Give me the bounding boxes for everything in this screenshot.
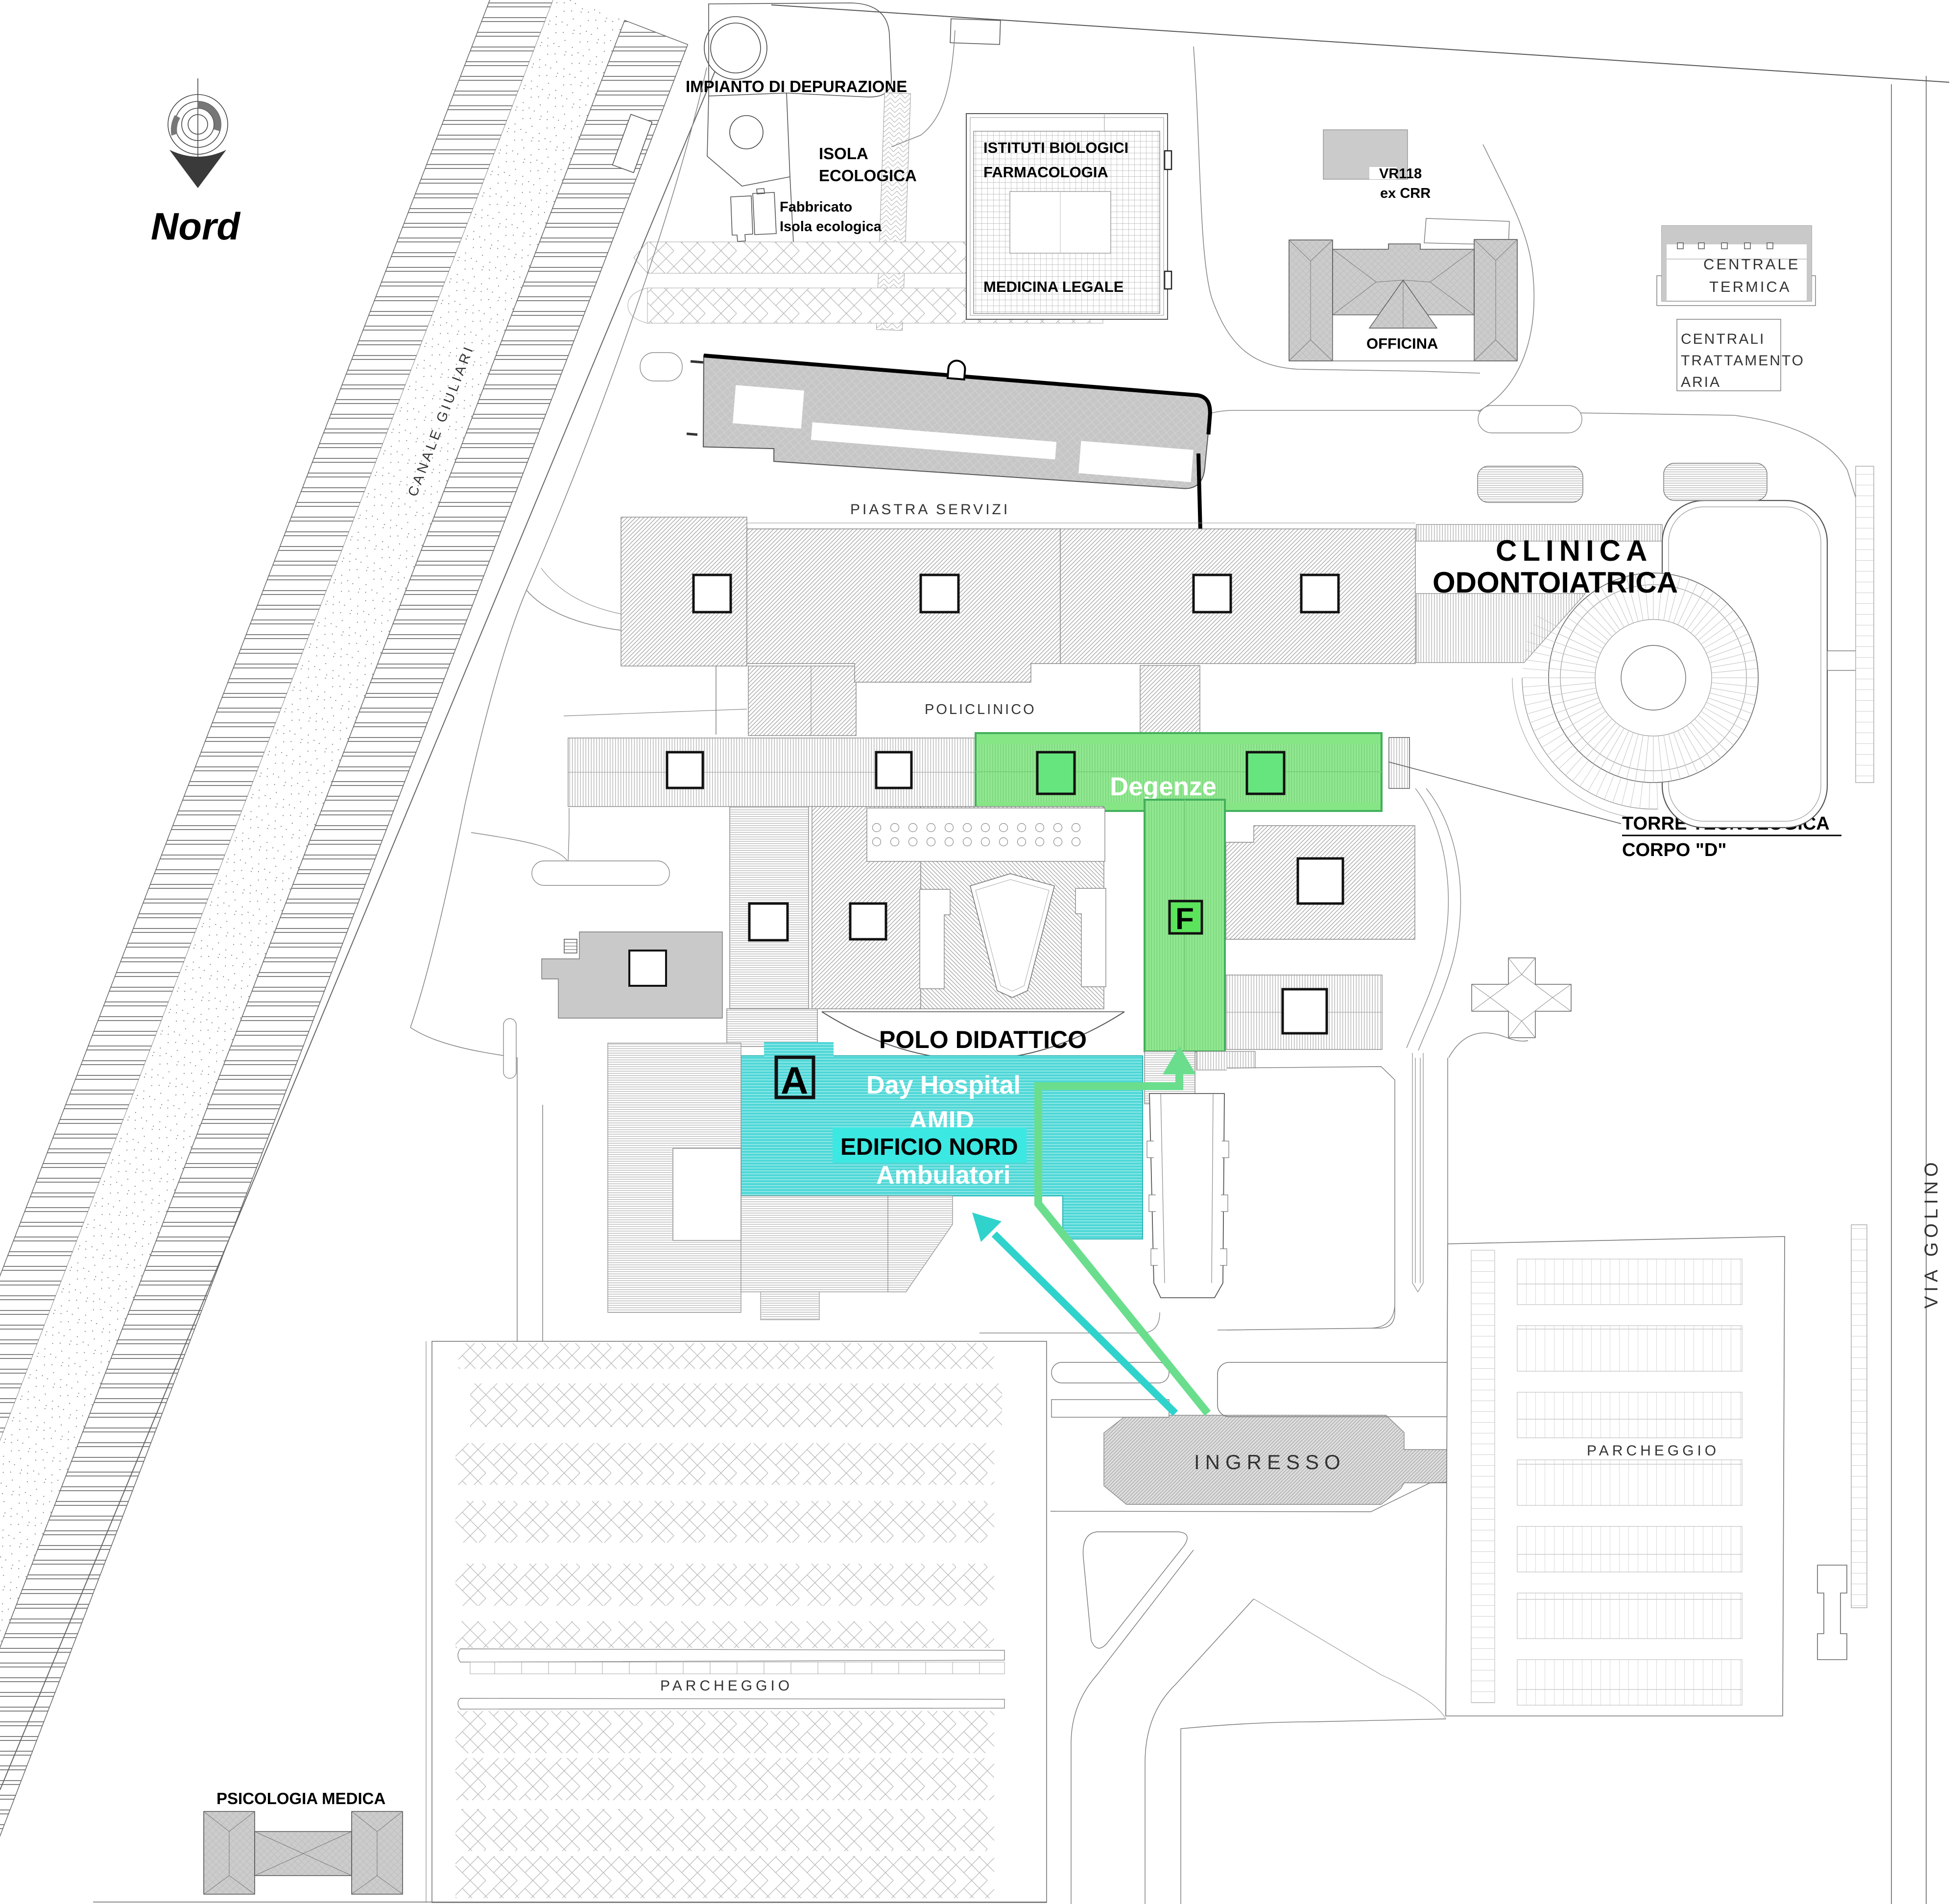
svg-text:CENTRALE: CENTRALE <box>1703 256 1800 273</box>
svg-text:POLO DIDATTICO: POLO DIDATTICO <box>879 1026 1087 1053</box>
svg-text:IMPIANTO DI DEPURAZIONE: IMPIANTO DI DEPURAZIONE <box>686 77 907 95</box>
svg-text:CENTRALI: CENTRALI <box>1681 331 1765 347</box>
svg-text:PARCHEGGIO: PARCHEGGIO <box>1587 1443 1720 1459</box>
svg-text:TERMICA: TERMICA <box>1709 278 1792 295</box>
svg-text:EDIFICIO NORD: EDIFICIO NORD <box>840 1134 1018 1160</box>
svg-text:PSICOLOGIA MEDICA: PSICOLOGIA MEDICA <box>216 1789 385 1808</box>
svg-text:INGRESSO: INGRESSO <box>1194 1451 1346 1474</box>
svg-text:ISOLA: ISOLA <box>819 144 868 163</box>
svg-text:ECOLOGICA: ECOLOGICA <box>819 167 917 185</box>
svg-text:ARIA: ARIA <box>1681 374 1721 390</box>
svg-text:MEDICINA LEGALE: MEDICINA LEGALE <box>983 278 1123 295</box>
svg-text:Ambulatori: Ambulatori <box>876 1161 1010 1190</box>
svg-text:ex CRR: ex CRR <box>1380 186 1431 201</box>
svg-text:VIA GOLINO: VIA GOLINO <box>1921 1158 1942 1309</box>
svg-text:POLICLINICO: POLICLINICO <box>925 702 1036 717</box>
svg-text:CLINICA: CLINICA <box>1496 534 1652 567</box>
svg-text:TRATTAMENTO: TRATTAMENTO <box>1681 353 1805 369</box>
svg-text:F: F <box>1175 902 1194 936</box>
svg-text:CORPO "D": CORPO "D" <box>1622 840 1726 860</box>
svg-text:PIASTRA SERVIZI: PIASTRA SERVIZI <box>850 501 1010 518</box>
svg-text:Nord: Nord <box>151 205 240 248</box>
svg-text:Day Hospital: Day Hospital <box>866 1071 1021 1099</box>
svg-text:Degenze: Degenze <box>1110 772 1217 801</box>
svg-text:Isola ecologica: Isola ecologica <box>780 219 882 235</box>
svg-text:ISTITUTI BIOLOGICI: ISTITUTI BIOLOGICI <box>983 139 1128 156</box>
svg-text:PARCHEGGIO: PARCHEGGIO <box>660 1678 793 1694</box>
svg-text:FARMACOLOGIA: FARMACOLOGIA <box>983 164 1108 181</box>
svg-text:VR118: VR118 <box>1379 166 1422 182</box>
svg-text:ODONTOIATRICA: ODONTOIATRICA <box>1433 566 1678 599</box>
svg-text:OFFICINA: OFFICINA <box>1366 335 1438 352</box>
svg-text:Fabbricato: Fabbricato <box>780 199 852 215</box>
svg-text:A: A <box>781 1059 808 1102</box>
